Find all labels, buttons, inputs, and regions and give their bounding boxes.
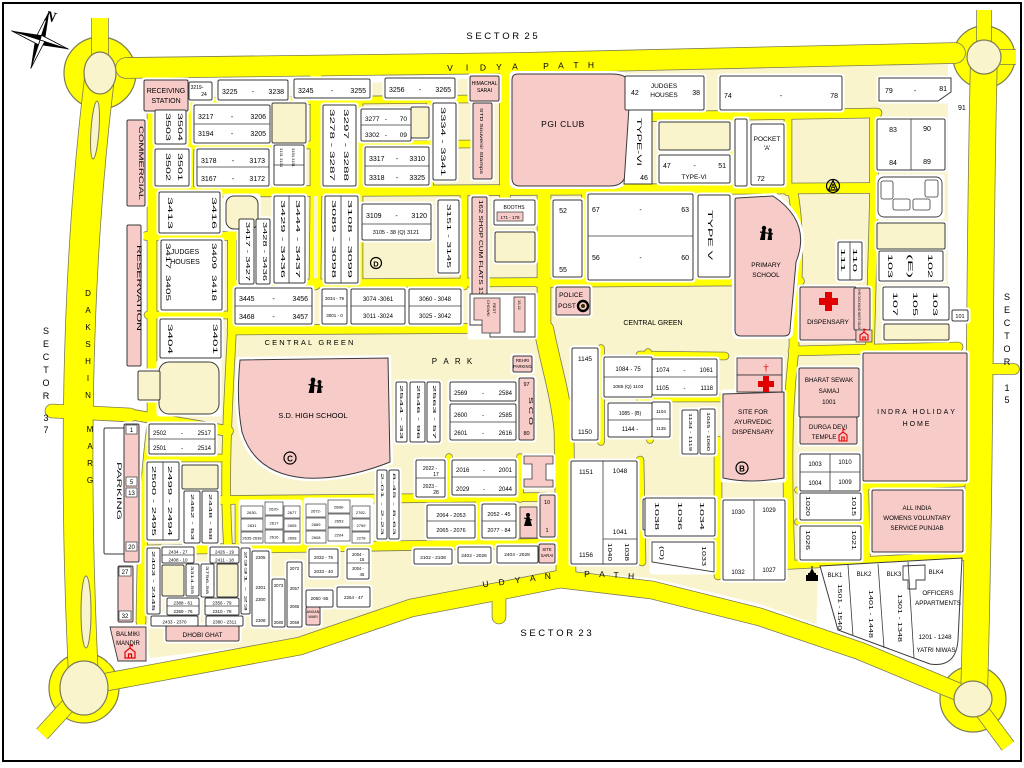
svg-text:BLK4: BLK4 xyxy=(929,570,944,576)
svg-text:2411 - 18: 2411 - 18 xyxy=(215,558,234,563)
svg-text:103: 103 xyxy=(886,254,892,280)
svg-text:H O M E: H O M E xyxy=(903,421,930,428)
svg-text:Y: Y xyxy=(496,62,502,72)
svg-text:-: - xyxy=(482,431,484,437)
svg-text:2050 -55: 2050 -55 xyxy=(311,596,329,601)
svg-text:5: 5 xyxy=(1004,395,1009,405)
svg-text:BLK3: BLK3 xyxy=(887,572,902,578)
svg-text:1009: 1009 xyxy=(838,480,852,486)
svg-text:2605: 2605 xyxy=(288,523,298,528)
svg-text:1015: 1015 xyxy=(850,496,856,516)
svg-text:2617: 2617 xyxy=(270,521,280,526)
svg-text:P A R K: P A R K xyxy=(432,357,474,366)
svg-text:-: - xyxy=(482,413,484,419)
svg-text:2499 - 2494: 2499 - 2494 xyxy=(166,466,172,537)
svg-text:BOOTHS: BOOTHS xyxy=(503,205,525,211)
svg-text:3468: 3468 xyxy=(239,314,255,321)
svg-text:S: S xyxy=(43,326,49,336)
svg-text:3167: 3167 xyxy=(201,176,217,183)
svg-text:3206: 3206 xyxy=(250,114,266,121)
svg-text:7: 7 xyxy=(43,425,48,435)
svg-text:1040: 1040 xyxy=(606,543,612,561)
svg-text:89: 89 xyxy=(923,159,931,166)
svg-text:H: H xyxy=(588,60,594,70)
svg-text:1084 - 75: 1084 - 75 xyxy=(615,367,641,373)
svg-text:PARKING: PARKING xyxy=(513,364,532,369)
svg-text:52: 52 xyxy=(559,208,567,215)
svg-text:107: 107 xyxy=(891,292,897,318)
svg-text:3278 - 3287: 3278 - 3287 xyxy=(328,109,334,182)
svg-text:3245: 3245 xyxy=(298,88,314,95)
svg-text:DISPENSARY: DISPENSARY xyxy=(807,319,849,326)
svg-text:2388 - 61: 2388 - 61 xyxy=(173,601,193,606)
svg-text:T: T xyxy=(43,365,49,375)
svg-text:1020: 1020 xyxy=(804,496,810,516)
svg-text:3404: 3404 xyxy=(166,324,173,355)
svg-text:3417 - 3427: 3417 - 3427 xyxy=(244,222,250,281)
svg-text:17: 17 xyxy=(433,472,439,478)
svg-text:DHOBI GHAT: DHOBI GHAT xyxy=(183,632,223,639)
svg-text:3217: 3217 xyxy=(198,114,214,121)
svg-text:1301 - 1348: 1301 - 1348 xyxy=(896,594,902,642)
svg-text:2544 - 33: 2544 - 33 xyxy=(399,385,404,440)
svg-text:1001: 1001 xyxy=(822,399,836,406)
svg-text:S.D. HIGH SCHOOL: S.D. HIGH SCHOOL xyxy=(278,411,347,420)
svg-text:R: R xyxy=(1004,357,1011,367)
svg-text:56: 56 xyxy=(592,255,600,262)
svg-text:2072: 2072 xyxy=(290,566,300,571)
svg-text:1038: 1038 xyxy=(623,543,629,561)
svg-text:09: 09 xyxy=(400,132,408,139)
svg-text:3255: 3255 xyxy=(350,88,366,95)
svg-text:3178: 3178 xyxy=(201,158,217,165)
svg-text:3756-58: 3756-58 xyxy=(205,566,210,595)
svg-text:3277: 3277 xyxy=(365,116,380,123)
svg-text:S E C T O R 2 3: S E C T O R 2 3 xyxy=(520,628,591,639)
svg-text:3502: 3502 xyxy=(164,153,170,182)
svg-text:JUDGES: JUDGES xyxy=(651,83,678,90)
svg-text:20: 20 xyxy=(128,545,135,551)
svg-text:BLK1: BLK1 xyxy=(828,573,843,579)
svg-text:E: E xyxy=(1004,305,1010,315)
svg-text:97: 97 xyxy=(523,382,529,388)
svg-text:2433 - 2370: 2433 - 2370 xyxy=(162,620,187,625)
svg-text:3154 3151: 3154 3151 xyxy=(291,148,296,168)
svg-text:32: 32 xyxy=(122,614,129,620)
svg-text:CHOWKI: CHOWKI xyxy=(486,300,491,316)
svg-text:N: N xyxy=(545,571,552,581)
svg-text:2254 - 47: 2254 - 47 xyxy=(344,595,364,600)
svg-text:R: R xyxy=(43,391,50,401)
svg-text:A: A xyxy=(85,306,91,315)
svg-text:2102 - 2108: 2102 - 2108 xyxy=(420,555,446,561)
svg-text:3401: 3401 xyxy=(211,324,218,355)
svg-text:3025 - 3042: 3025 - 3042 xyxy=(419,314,452,320)
svg-text:162 SHOP CUM FLATS 134: 162 SHOP CUM FLATS 134 xyxy=(477,200,483,300)
svg-text:SARAI: SARAI xyxy=(477,88,492,94)
svg-text:2408 - 10: 2408 - 10 xyxy=(168,558,188,563)
svg-text:3131 3134: 3131 3134 xyxy=(279,148,284,168)
svg-text:2359 - 76: 2359 - 76 xyxy=(173,609,193,614)
svg-text:2563 - 57: 2563 - 57 xyxy=(432,385,437,440)
svg-text:2356 - 79: 2356 - 79 xyxy=(212,601,232,606)
svg-text:2073: 2073 xyxy=(274,583,284,588)
svg-text:2608: 2608 xyxy=(288,536,298,541)
svg-text:2331 - 23: 2331 - 23 xyxy=(244,551,249,614)
svg-text:2404 - 2028: 2404 - 2028 xyxy=(504,552,530,558)
svg-text:RESERVATION: RESERVATION xyxy=(135,245,142,332)
svg-text:2080: 2080 xyxy=(274,620,284,625)
svg-text:1104: 1104 xyxy=(656,409,666,414)
svg-text:1105: 1105 xyxy=(656,386,670,392)
svg-text:2616: 2616 xyxy=(499,431,513,437)
svg-text:HOUSES: HOUSES xyxy=(650,92,678,99)
svg-text:POCKET: POCKET xyxy=(754,136,781,143)
svg-text:SAMAJ: SAMAJ xyxy=(819,388,840,395)
svg-text:2310 - 78: 2310 - 78 xyxy=(212,609,232,614)
svg-text:JUDGES: JUDGES xyxy=(171,249,200,256)
svg-text:3445: 3445 xyxy=(239,296,255,303)
svg-text:90: 90 xyxy=(923,126,931,133)
svg-text:1151: 1151 xyxy=(579,469,593,476)
svg-text:1144 -: 1144 - xyxy=(622,427,639,433)
svg-text:3074 -3061: 3074 -3061 xyxy=(363,297,394,303)
svg-text:H: H xyxy=(85,357,91,366)
svg-text:-: - xyxy=(385,132,387,139)
svg-text:74: 74 xyxy=(724,93,732,100)
svg-text:T: T xyxy=(1004,331,1010,341)
svg-text:1135: 1135 xyxy=(656,426,666,431)
svg-text:63: 63 xyxy=(681,207,689,214)
svg-text:C: C xyxy=(43,352,50,362)
svg-text:1032: 1032 xyxy=(731,570,745,576)
svg-text:2448 - 58: 2448 - 58 xyxy=(207,494,213,541)
svg-text:3105 - 38 (Q) 3121: 3105 - 38 (Q) 3121 xyxy=(373,230,419,236)
svg-text:HIMACHAL: HIMACHAL xyxy=(472,81,498,87)
svg-text:-: - xyxy=(483,468,485,474)
svg-text:1061: 1061 xyxy=(700,368,714,374)
svg-text:REHRI: REHRI xyxy=(516,358,529,363)
svg-text:1036: 1036 xyxy=(676,502,682,530)
svg-text:15: 15 xyxy=(360,557,365,562)
svg-text:APPARTMENTS: APPARTMENTS xyxy=(915,600,961,607)
svg-text:-: - xyxy=(684,386,686,392)
svg-text:3265: 3265 xyxy=(435,87,451,94)
svg-text:1048: 1048 xyxy=(613,468,628,475)
svg-text:CENTRAL GREEN: CENTRAL GREEN xyxy=(623,320,682,327)
svg-text:15-11: 15-11 xyxy=(517,300,522,311)
svg-text:P: P xyxy=(584,569,590,579)
svg-text:1021: 1021 xyxy=(850,530,856,550)
svg-text:2059: 2059 xyxy=(290,620,300,625)
svg-text:D: D xyxy=(85,289,91,298)
svg-text:1401 - 1448: 1401 - 1448 xyxy=(867,590,873,638)
svg-text:2620-: 2620- xyxy=(269,507,280,512)
svg-text:3409: 3409 xyxy=(210,243,216,270)
svg-text:2669: 2669 xyxy=(312,522,322,527)
svg-text:3219-: 3219- xyxy=(191,85,204,91)
svg-text:1201 - 1248: 1201 - 1248 xyxy=(918,634,952,641)
svg-text:1134 - 1119: 1134 - 1119 xyxy=(687,413,693,451)
svg-text:2502: 2502 xyxy=(153,431,167,437)
svg-text:1: 1 xyxy=(545,528,548,534)
svg-text:PRIMARY: PRIMARY xyxy=(751,262,781,269)
svg-text:3501: 3501 xyxy=(176,153,182,182)
svg-text:2064 - 2053: 2064 - 2053 xyxy=(436,513,465,519)
svg-text:(O): (O) xyxy=(658,546,664,561)
svg-text:O: O xyxy=(42,378,49,388)
svg-text:D: D xyxy=(480,62,486,72)
svg-text:84: 84 xyxy=(889,160,897,167)
svg-text:2032 - 75: 2032 - 75 xyxy=(314,555,334,560)
svg-text:91: 91 xyxy=(958,105,966,112)
svg-text:3001 - 0: 3001 - 0 xyxy=(326,313,343,318)
svg-text:1034: 1034 xyxy=(698,502,704,530)
svg-text:(E): (E) xyxy=(906,254,912,278)
svg-text:C E N T R A L G R E E N: C E N T R A L G R E E N xyxy=(265,338,354,347)
svg-text:81: 81 xyxy=(939,86,947,93)
svg-text:3504: 3504 xyxy=(176,113,182,142)
svg-text:79: 79 xyxy=(885,88,893,95)
svg-text:'A': 'A' xyxy=(764,145,771,152)
svg-text:P: P xyxy=(543,61,549,71)
svg-text:M: M xyxy=(87,425,94,434)
svg-text:2044: 2044 xyxy=(499,487,513,493)
svg-text:1118: 1118 xyxy=(701,386,714,392)
svg-text:3457: 3457 xyxy=(292,314,308,321)
svg-text:2301: 2301 xyxy=(255,585,266,590)
svg-text:2462 - 53: 2462 - 53 xyxy=(189,494,195,541)
svg-text:WOMENS VOLUNTARY: WOMENS VOLUNTARY xyxy=(883,515,951,522)
svg-text:B: B xyxy=(739,465,745,474)
svg-text:3325: 3325 xyxy=(409,175,425,182)
svg-text:DURGA DEVI: DURGA DEVI xyxy=(809,424,847,431)
svg-text:DISPENSARY: DISPENSARY xyxy=(732,429,774,436)
svg-text:2514: 2514 xyxy=(198,446,212,452)
svg-text:60: 60 xyxy=(681,255,689,262)
svg-text:2501: 2501 xyxy=(153,446,167,452)
svg-text:H: H xyxy=(628,571,635,581)
svg-text:A: A xyxy=(558,61,564,71)
svg-text:2004 -: 2004 - xyxy=(352,566,364,571)
svg-text:2402 - 2026: 2402 - 2026 xyxy=(461,553,487,559)
svg-text:I: I xyxy=(466,63,468,73)
svg-text:72: 72 xyxy=(757,176,765,183)
svg-text:1085 - (B): 1085 - (B) xyxy=(619,411,642,417)
svg-text:1004: 1004 xyxy=(808,481,822,487)
svg-text:3173: 3173 xyxy=(249,158,265,165)
svg-text:2517: 2517 xyxy=(198,431,212,437)
svg-text:13: 13 xyxy=(128,491,135,497)
svg-text:ANGAN: ANGAN xyxy=(307,610,320,614)
svg-text:1: 1 xyxy=(1004,383,1009,393)
svg-text:3302: 3302 xyxy=(365,132,380,139)
svg-text:2608: 2608 xyxy=(312,535,322,540)
svg-text:2585: 2585 xyxy=(499,413,513,419)
svg-text:3205: 3205 xyxy=(250,131,266,138)
svg-text:3151 - 3145: 3151 - 3145 xyxy=(445,204,451,268)
svg-text:SARAI: SARAI xyxy=(541,553,554,558)
svg-text:2052 - 45: 2052 - 45 xyxy=(487,512,510,518)
svg-text:3428 - 3436: 3428 - 3436 xyxy=(261,222,267,281)
svg-text:171 - 178: 171 - 178 xyxy=(500,215,520,220)
svg-text:2616: 2616 xyxy=(270,535,280,540)
svg-text:105: 105 xyxy=(911,292,917,318)
svg-text:3317: 3317 xyxy=(369,156,385,163)
svg-text:2677: 2677 xyxy=(288,510,298,515)
svg-text:2033 - 40: 2033 - 40 xyxy=(314,569,334,574)
svg-text:47: 47 xyxy=(663,163,671,170)
svg-text:1003: 1003 xyxy=(808,462,822,468)
svg-text:TYPE V: TYPE V xyxy=(706,210,713,261)
svg-text:STATION: STATION xyxy=(151,98,180,105)
svg-text:MANDIR: MANDIR xyxy=(116,641,140,647)
svg-text:POST: POST xyxy=(558,303,576,310)
svg-text:1030: 1030 xyxy=(731,510,745,516)
svg-text:3011 -3024: 3011 -3024 xyxy=(363,314,394,320)
svg-text:3120: 3120 xyxy=(411,213,427,220)
svg-text:SERVICE PUNJAB: SERVICE PUNJAB xyxy=(890,525,943,532)
svg-text:2434 - 27: 2434 - 27 xyxy=(168,550,188,555)
svg-text:-: - xyxy=(385,116,387,123)
svg-text:BHARAT SEWAK: BHARAT SEWAK xyxy=(805,377,854,384)
svg-text:2065: 2065 xyxy=(290,604,300,609)
svg-text:YATRI NIWAS: YATRI NIWAS xyxy=(916,647,955,654)
svg-text:A: A xyxy=(830,184,835,191)
svg-text:2631: 2631 xyxy=(248,523,258,528)
svg-text:S E C T O R 2 5: S E C T O R 2 5 xyxy=(466,31,537,42)
svg-text:2278: 2278 xyxy=(357,536,367,541)
svg-text:E: E xyxy=(43,339,49,349)
svg-text:1029: 1029 xyxy=(762,508,776,514)
svg-text:†: † xyxy=(763,362,769,374)
svg-text:3314-55: 3314-55 xyxy=(190,566,195,595)
svg-text:10: 10 xyxy=(544,500,550,506)
svg-text:2001: 2001 xyxy=(499,468,513,474)
svg-text:2635-2638: 2635-2638 xyxy=(242,536,262,541)
svg-text:3310: 3310 xyxy=(409,156,425,163)
svg-text:2688-: 2688- xyxy=(334,505,345,510)
svg-text:3194: 3194 xyxy=(198,131,214,138)
svg-text:2204: 2204 xyxy=(335,533,345,538)
svg-text:3429 - 3436: 3429 - 3436 xyxy=(279,200,285,278)
svg-text:2057: 2057 xyxy=(290,586,300,591)
svg-text:2500 - 2495: 2500 - 2495 xyxy=(150,466,156,537)
svg-text:-: - xyxy=(181,431,183,437)
svg-text:STD Souvenir Stamps: STD Souvenir Stamps xyxy=(479,108,484,175)
svg-text:REST: REST xyxy=(492,303,497,314)
svg-text:3034 - 79: 3034 - 79 xyxy=(325,296,345,301)
svg-text:38: 38 xyxy=(692,90,700,97)
svg-text:C: C xyxy=(287,455,293,464)
svg-text:2653: 2653 xyxy=(335,519,345,524)
svg-text:103: 103 xyxy=(931,292,937,318)
svg-text:I: I xyxy=(87,374,89,383)
svg-text:2584: 2584 xyxy=(499,391,513,397)
svg-text:80: 80 xyxy=(523,431,529,437)
svg-text:55: 55 xyxy=(559,267,567,274)
svg-text:N: N xyxy=(85,391,91,400)
svg-text:1010: 1010 xyxy=(838,460,852,466)
svg-text:1501 - 1540: 1501 - 1540 xyxy=(836,584,842,630)
svg-text:24: 24 xyxy=(201,92,207,98)
svg-text:111: 111 xyxy=(839,248,845,272)
svg-text:51: 51 xyxy=(718,163,726,170)
svg-text:AYURVEDIC: AYURVEDIC xyxy=(734,419,772,426)
svg-text:ALL INDIA: ALL INDIA xyxy=(902,505,932,512)
svg-text:110: 110 xyxy=(851,248,857,272)
svg-text:3: 3 xyxy=(43,413,48,423)
svg-text:2016: 2016 xyxy=(456,468,470,474)
svg-text:R: R xyxy=(87,459,93,468)
svg-text:D: D xyxy=(373,260,379,269)
svg-text:1156: 1156 xyxy=(579,552,593,559)
svg-text:2300: 2300 xyxy=(255,597,266,602)
svg-text:1038: 1038 xyxy=(653,502,659,530)
svg-text:3413: 3413 xyxy=(166,197,173,230)
svg-text:3334 - 3341: 3334 - 3341 xyxy=(439,107,445,177)
svg-text:101: 101 xyxy=(955,314,964,320)
svg-text:BALMIKI: BALMIKI xyxy=(116,632,140,638)
svg-text:70: 70 xyxy=(400,116,408,123)
svg-text:1074: 1074 xyxy=(656,368,670,374)
svg-text:78: 78 xyxy=(830,93,838,100)
svg-text:SHRI DIGG ANAND MAYEE 034-04: SHRI DIGG ANAND MAYEE 034-04 xyxy=(857,289,861,329)
svg-text:2029: 2029 xyxy=(456,487,470,493)
svg-text:3456: 3456 xyxy=(292,296,308,303)
svg-text:A: A xyxy=(512,62,518,72)
svg-text:3109: 3109 xyxy=(366,213,382,220)
svg-text:G: G xyxy=(87,476,93,485)
svg-text:3503: 3503 xyxy=(164,113,170,142)
svg-text:WARI: WARI xyxy=(308,615,317,619)
svg-text:2762-: 2762- xyxy=(356,510,367,515)
svg-text:46: 46 xyxy=(640,175,648,182)
svg-text:2380 - 2311: 2380 - 2311 xyxy=(213,620,237,625)
svg-text:2-01 - 2-23: 2-01 - 2-23 xyxy=(380,473,385,537)
svg-text:2426 - 19: 2426 - 19 xyxy=(215,550,235,555)
svg-text:2065 - 2076: 2065 - 2076 xyxy=(436,528,465,534)
svg-text:C: C xyxy=(1004,318,1011,328)
svg-text:BLK2: BLK2 xyxy=(857,572,872,578)
svg-text:2601: 2601 xyxy=(454,431,468,437)
svg-text:TEMPLE: TEMPLE xyxy=(812,434,837,441)
svg-text:3297 - 3288: 3297 - 3288 xyxy=(342,109,348,182)
svg-text:2546 - 96: 2546 - 96 xyxy=(416,385,421,440)
svg-text:2305: 2305 xyxy=(255,555,266,560)
svg-text:OFFICERS: OFFICERS xyxy=(922,590,953,597)
svg-text:83: 83 xyxy=(889,127,897,134)
svg-text:1033: 1033 xyxy=(700,546,706,566)
svg-text:2600: 2600 xyxy=(454,413,468,419)
svg-text:3238: 3238 xyxy=(268,89,284,96)
svg-text:A: A xyxy=(599,569,605,579)
svg-text:TYPE-VI: TYPE-VI xyxy=(635,118,642,166)
svg-text:45: 45 xyxy=(360,572,365,577)
svg-text:2403 - 2445: 2403 - 2445 xyxy=(151,551,156,612)
svg-text:2672-: 2672- xyxy=(311,509,322,514)
svg-text:3225: 3225 xyxy=(222,89,238,96)
svg-text:2569: 2569 xyxy=(454,391,468,397)
svg-text:K: K xyxy=(85,323,91,332)
svg-text:2308: 2308 xyxy=(255,618,266,623)
svg-text:3108 - 3099: 3108 - 3099 xyxy=(346,200,352,278)
svg-text:-: - xyxy=(181,446,183,452)
svg-text:1045 - 1060: 1045 - 1060 xyxy=(705,412,711,451)
svg-text:27: 27 xyxy=(122,570,129,576)
svg-text:S: S xyxy=(85,340,90,349)
svg-text:1150: 1150 xyxy=(578,429,592,436)
